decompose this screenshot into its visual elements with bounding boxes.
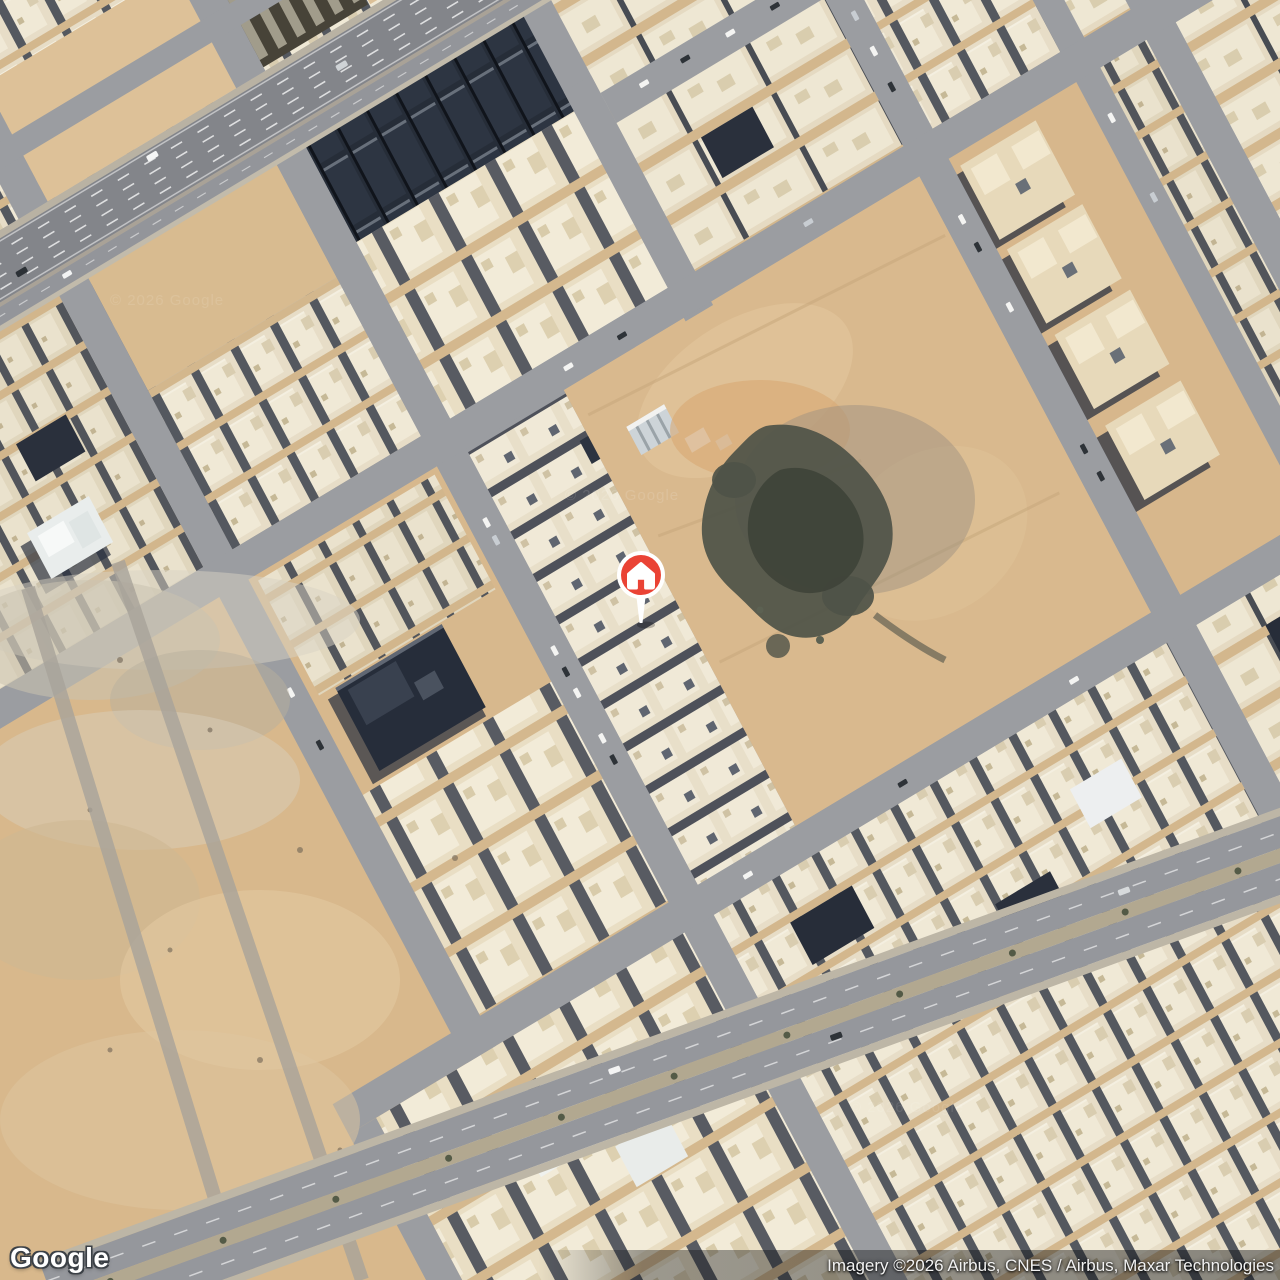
svg-text:© 2026 Google: © 2026 Google — [565, 487, 679, 504]
google-logo[interactable]: Google — [10, 1242, 109, 1274]
satellite-imagery: © 2026 Google © 2026 Google © 2026 Googl… — [0, 0, 1280, 1280]
svg-text:© 2026 Google: © 2026 Google — [110, 292, 224, 309]
map-attribution: Imagery ©2026 Airbus, CNES / Airbus, Max… — [827, 1256, 1274, 1276]
svg-text:© 2026 Google: © 2026 Google — [850, 1099, 964, 1116]
map-viewport[interactable]: © 2026 Google © 2026 Google © 2026 Googl… — [0, 0, 1280, 1280]
